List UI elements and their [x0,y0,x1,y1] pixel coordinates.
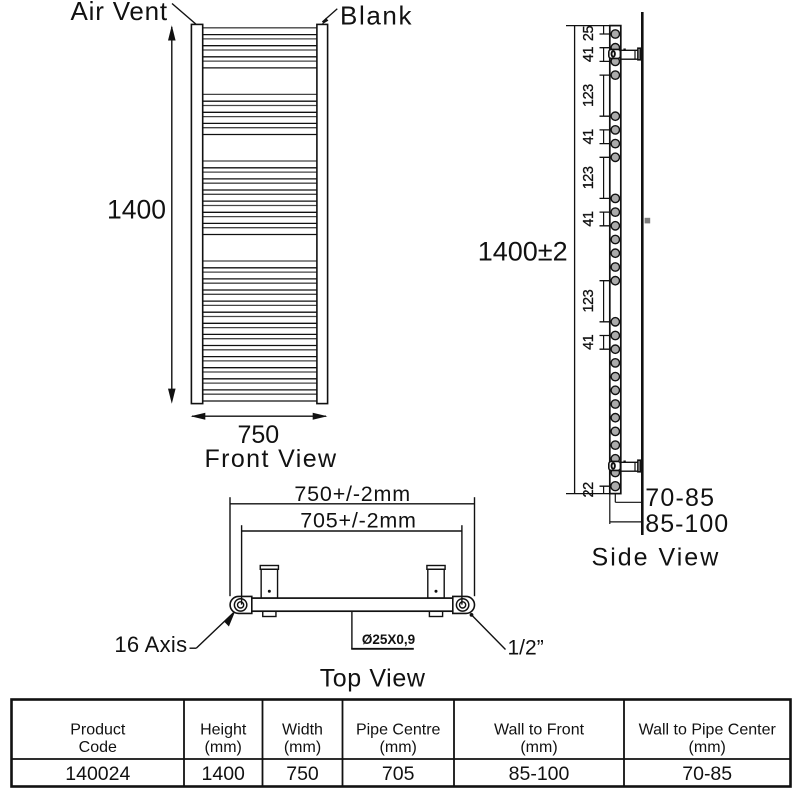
svg-text:41: 41 [581,334,597,350]
svg-text:705: 705 [382,763,415,785]
svg-text:705+/-2mm: 705+/-2mm [300,509,417,533]
svg-text:Side View: Side View [592,544,721,572]
svg-text:(mm): (mm) [380,739,417,756]
svg-text:(mm): (mm) [689,739,726,756]
svg-text:123: 123 [581,84,597,107]
svg-text:Height: Height [200,722,247,739]
svg-text:123: 123 [581,166,597,189]
svg-text:Ø25X0,9: Ø25X0,9 [362,632,415,647]
svg-text:750: 750 [286,763,319,785]
svg-text:Blank: Blank [340,1,413,31]
svg-text:70-85: 70-85 [682,763,732,785]
svg-text:1400±2: 1400±2 [478,236,568,266]
svg-text:25: 25 [581,26,597,42]
svg-text:123: 123 [581,289,597,312]
svg-text:85-100: 85-100 [509,763,570,785]
svg-text:(mm): (mm) [284,739,321,756]
svg-text:85-100: 85-100 [645,510,729,538]
svg-text:1400: 1400 [202,763,246,785]
svg-text:750+/-2mm: 750+/-2mm [294,482,411,506]
svg-text:Top View: Top View [320,665,426,693]
svg-text:1400: 1400 [107,195,166,225]
svg-text:16 Axis: 16 Axis [114,632,187,657]
svg-text:140024: 140024 [65,763,130,785]
svg-text:Product: Product [70,722,126,739]
svg-text:Wall to Front: Wall to Front [494,722,585,739]
svg-text:Front View: Front View [204,445,337,473]
svg-text:Wall to Pipe Center: Wall to Pipe Center [639,722,777,739]
svg-text:Width: Width [282,722,323,739]
svg-text:22: 22 [581,482,597,498]
svg-text:Pipe Centre: Pipe Centre [356,722,441,739]
svg-text:(mm): (mm) [205,739,242,756]
svg-text:41: 41 [581,129,597,145]
svg-text:1/2”: 1/2” [508,637,544,660]
svg-text:Air Vent: Air Vent [71,0,168,26]
svg-text:(mm): (mm) [520,739,557,756]
svg-text:Code: Code [79,739,117,756]
svg-text:41: 41 [581,47,597,63]
svg-text:41: 41 [581,211,597,227]
svg-text:70-85: 70-85 [645,484,715,512]
